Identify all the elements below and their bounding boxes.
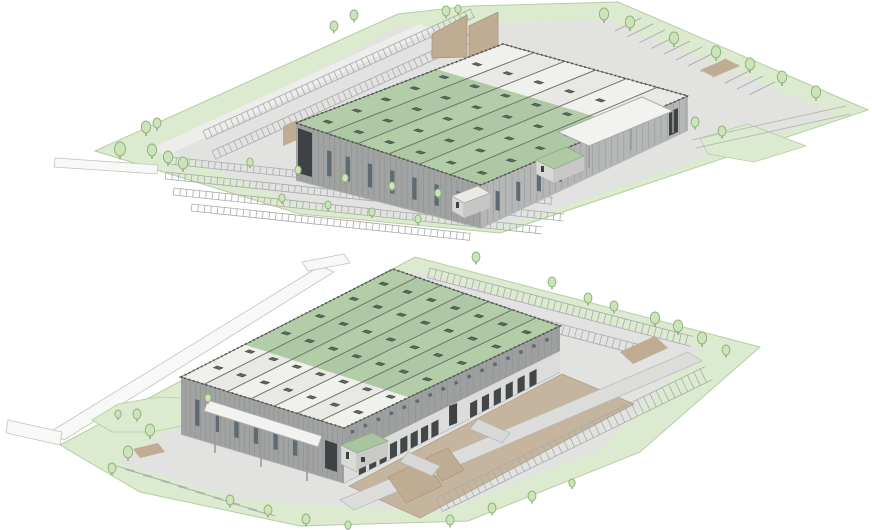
hut-door [456, 202, 459, 208]
tree [350, 10, 358, 23]
gatehouse-door [346, 452, 349, 459]
tree-crown [178, 157, 187, 169]
parking-stall-line [321, 218, 322, 225]
tree-crown [115, 142, 126, 156]
parking-stall-line [237, 209, 238, 216]
parking-stall-line [334, 219, 335, 226]
parking-stall-line [249, 210, 250, 217]
parking-stall-line [269, 212, 270, 219]
parking-stall-line [418, 228, 419, 235]
parking-stall-line [217, 207, 218, 214]
tree [345, 521, 351, 530]
tree-crown [718, 126, 726, 136]
tree-crown [330, 21, 338, 31]
aerial-renderings-svg [0, 0, 872, 530]
parking-stall-line [288, 214, 289, 221]
parking-stall-line [346, 220, 347, 227]
parking-stall-line [199, 191, 200, 198]
tree-crown [226, 495, 234, 505]
tree-crown [415, 215, 421, 223]
tree [330, 21, 338, 34]
parking-stall-line [405, 227, 406, 234]
tree-crown [147, 144, 156, 156]
tree-crown [697, 332, 706, 344]
tree [528, 491, 536, 504]
tree-crown [548, 277, 556, 287]
tree-crown [777, 71, 786, 83]
facade-window [327, 151, 331, 177]
tree [446, 515, 454, 528]
parking-stall-line [211, 206, 212, 213]
parking-stall-line [529, 226, 530, 233]
tree-crown [584, 293, 592, 303]
parking-stall-line [379, 224, 380, 231]
tree-crown [446, 515, 454, 525]
parking-stall-line [424, 229, 425, 236]
tree-crown [722, 345, 730, 355]
tree-crown [488, 503, 496, 513]
parking-stall-line [535, 226, 536, 233]
parking-stall-line [243, 209, 244, 216]
tree [472, 252, 480, 265]
parking-stall-line [186, 189, 187, 196]
parking-stall-line [204, 205, 205, 212]
parking-stall-line [224, 207, 225, 214]
parking-stall-line [431, 229, 432, 236]
gatehouse-window [361, 457, 365, 462]
tree-crown [691, 117, 699, 127]
tree-crown [389, 182, 395, 190]
parking-stall-line [437, 230, 438, 237]
tree-crown [141, 121, 150, 133]
parking-stall-line [340, 220, 341, 227]
tree-crown [295, 166, 301, 174]
tree-crown [669, 32, 678, 44]
parking-stall-line [308, 216, 309, 223]
tree-crown [650, 312, 659, 324]
tree-crown [115, 410, 121, 418]
tree [488, 503, 496, 516]
tree-crown [302, 514, 310, 524]
site-plan-rendering [0, 0, 872, 530]
facade-window [368, 163, 372, 188]
tree-crown [345, 521, 351, 529]
tree-crown [673, 320, 682, 332]
tree-crown [145, 424, 154, 436]
tree-crown [442, 6, 450, 16]
parking-stall-line [301, 216, 302, 223]
tree-crown [279, 194, 285, 202]
tree-crown [811, 86, 820, 98]
parking-stall-line [469, 233, 470, 240]
tree [569, 479, 575, 489]
gatehouse-door [541, 166, 544, 172]
main-entrance [325, 440, 337, 472]
parking-stall-line [398, 226, 399, 233]
parking-stall-line [392, 225, 393, 232]
parking-stall-line [238, 195, 239, 202]
facade-window [195, 399, 199, 426]
parking-stall-line [372, 223, 373, 230]
facade-window [412, 177, 416, 200]
tree-crown [369, 208, 375, 216]
parking-stall-line [359, 222, 360, 229]
side-window [496, 191, 500, 211]
parking-stall-line [314, 217, 315, 224]
parking-stall-line [212, 192, 213, 199]
tree-crown [745, 58, 754, 70]
parking-stall-line [353, 221, 354, 228]
parking-stall-line [173, 188, 174, 195]
tree-crown [569, 479, 575, 487]
tree-crown [163, 151, 172, 163]
tree-crown [247, 158, 253, 166]
parking-stall-line [180, 189, 181, 196]
tree-crown [435, 189, 441, 197]
parking-stall-line [282, 214, 283, 221]
parking-stall-line [456, 232, 457, 239]
parking-stall-line [256, 211, 257, 218]
parking-stall-line [443, 231, 444, 238]
parking-stall-line [191, 204, 192, 211]
tree-crown [455, 5, 461, 13]
parking-stall-line [198, 205, 199, 212]
parking-stall-line [366, 222, 367, 229]
access-road-stub [6, 420, 62, 445]
tree-crown [325, 201, 331, 209]
tree-crown [205, 394, 211, 402]
tree-crown [610, 301, 618, 311]
parking-stall-line [295, 215, 296, 222]
tree-crown [123, 446, 132, 458]
tree-crown [108, 463, 116, 473]
tree-crown [625, 16, 634, 28]
tree-crown [342, 174, 348, 182]
tree [548, 277, 556, 290]
tree-crown [153, 118, 161, 128]
aerial-view-1 [54, 2, 868, 240]
tree-crown [350, 10, 358, 20]
parking-stall-line [193, 190, 194, 197]
parking-stall-line [463, 233, 464, 240]
tree-crown [599, 8, 608, 20]
parking-stall-line [225, 193, 226, 200]
parking-stall-line [230, 208, 231, 215]
parking-stall-line [560, 214, 561, 221]
tree-crown [264, 505, 272, 515]
parking-stall-line [275, 213, 276, 220]
parking-stall-line [411, 227, 412, 234]
parking-stall-line [327, 218, 328, 225]
tree-crown [711, 46, 720, 58]
side-window [516, 181, 520, 201]
aerial-view-2 [6, 252, 760, 530]
parking-stall-line [385, 224, 386, 231]
parking-stall-line [262, 212, 263, 219]
tree-crown [472, 252, 480, 262]
parking-stall-line [206, 191, 207, 198]
drive-in-door [449, 403, 457, 426]
parking-stall-line [450, 231, 451, 238]
tree-crown [528, 491, 536, 501]
parking-stall-line [231, 194, 232, 201]
parking-stall-line [219, 193, 220, 200]
tree-crown [133, 409, 141, 419]
